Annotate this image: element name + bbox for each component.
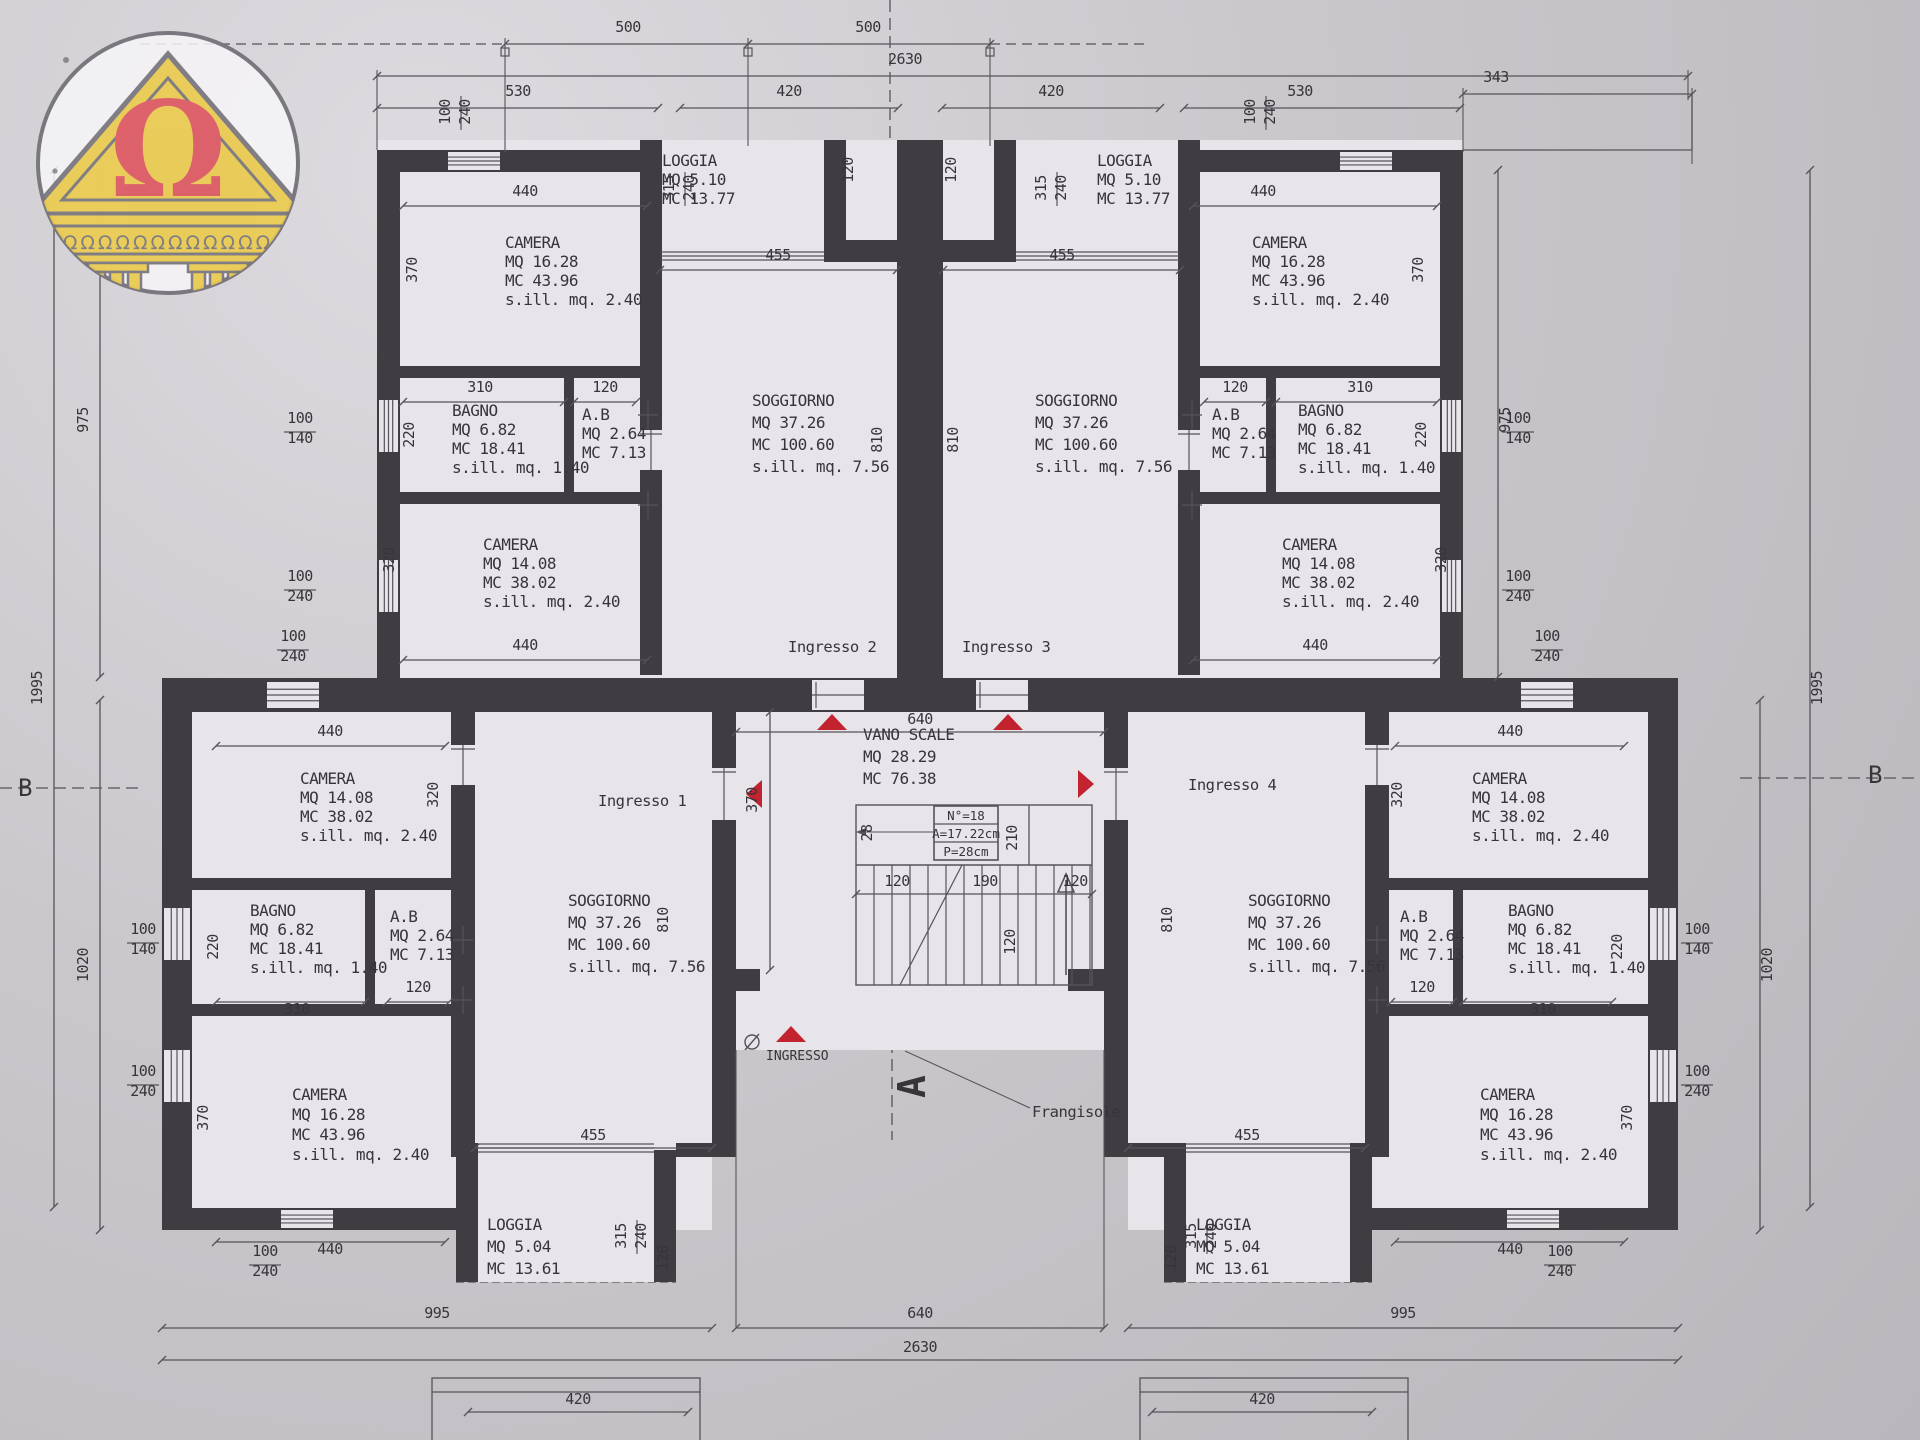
room-label-line: MC 18.41 [250, 939, 323, 958]
dim-label: 310 [1347, 378, 1373, 396]
dim-label: 100 [130, 920, 156, 938]
dim-label: 240 [1547, 1262, 1573, 1280]
dim-label: 120 [1222, 378, 1248, 396]
dim-label: 2630 [903, 1338, 938, 1356]
dim-label: 810 [654, 907, 672, 933]
room-label-line: CAMERA [1480, 1085, 1536, 1104]
room-label-line: s.ill. mq. 2.40 [1282, 592, 1419, 611]
dim-label: 240 [1534, 647, 1560, 665]
dim-label: 455 [1234, 1126, 1260, 1144]
room-label-line: s.ill. mq. 1.40 [1508, 958, 1645, 977]
logo-omega-glyph: Ω [109, 73, 227, 228]
room-label-line: MC 18.41 [1298, 439, 1371, 458]
room-label-line: LOGGIA [662, 151, 718, 170]
dim-label: 100 [436, 99, 454, 125]
dim-label: 315 [612, 1223, 630, 1249]
dim-label: 100 [1547, 1242, 1573, 1260]
dim-label: 120 [942, 157, 960, 183]
room-label-line: CAMERA [300, 769, 356, 788]
dim-label: 975 [1496, 407, 1514, 433]
stair-info-row: A=17.22cm [932, 826, 1000, 841]
dim-label: 240 [287, 587, 313, 605]
dim-label: 240 [1684, 1082, 1710, 1100]
ingresso-2-label: Ingresso 2 [788, 638, 876, 656]
dim-label: 500 [855, 18, 881, 36]
room-label-line: s.ill. mq. 1.40 [452, 458, 589, 477]
room-label-line: s.ill. mq. 2.40 [300, 826, 437, 845]
room-label-line: s.ill. mq. 2.40 [1480, 1145, 1617, 1164]
stair-info-row: N°=18 [947, 808, 985, 823]
wall-segment [994, 140, 1016, 262]
room-label-line: s.ill. mq. 7.56 [568, 957, 705, 976]
dim-label: 455 [1049, 246, 1075, 264]
room-label-line: MQ 16.28 [1480, 1105, 1553, 1124]
dim-label: 120 [884, 872, 910, 890]
dim-label: 530 [1287, 82, 1313, 100]
room-label-line: s.ill. mq. 2.40 [505, 290, 642, 309]
dim-label: 455 [765, 246, 791, 264]
logo-frieze-omegas: ΩΩΩΩΩΩΩΩΩΩΩΩ [63, 232, 273, 254]
wall-segment [712, 969, 760, 991]
room-label-line: s.ill. mq. 2.40 [1472, 826, 1609, 845]
dim-label: 320 [424, 782, 442, 808]
dim-label: 1995 [1808, 671, 1826, 705]
dim-label: 440 [317, 1240, 343, 1258]
room-label-line: MC 13.77 [1097, 189, 1170, 208]
room-label-line: MQ 16.28 [292, 1105, 365, 1124]
room-label-line: A.B [1400, 907, 1427, 926]
room-label-line: MQ 14.08 [300, 788, 373, 807]
room-label-line: A.B [390, 907, 417, 926]
dim-label: 315 [1032, 175, 1050, 201]
room-label-line: s.ill. mq. 7.56 [1035, 457, 1172, 476]
room-label-line: BAGNO [452, 401, 498, 420]
room-label-line: MC 18.41 [1508, 939, 1581, 958]
wall-segment [1200, 366, 1440, 378]
room-label-line: MQ 5.04 [487, 1237, 551, 1256]
dim-label: 1995 [28, 671, 46, 705]
room-label-line: s.ill. mq. 2.40 [1252, 290, 1389, 309]
room-label-line: MQ 2.64 [390, 926, 454, 945]
dim-label: 240 [1261, 99, 1279, 125]
dim-label: 1020 [1758, 947, 1776, 982]
room-label-line: s.ill. mq. 2.40 [483, 592, 620, 611]
room-label-line: A.B [1212, 405, 1239, 424]
room-label-line: MQ 2.64 [1400, 926, 1464, 945]
dim-label: 100 [280, 627, 306, 645]
dim-label: 220 [1412, 422, 1430, 448]
dim-label: 320 [1388, 782, 1406, 808]
room-label-line: CAMERA [292, 1085, 348, 1104]
room-label-line: MC 100.60 [1035, 435, 1117, 454]
dim-label: 420 [565, 1390, 591, 1408]
dim-label: 500 [615, 18, 641, 36]
room-label-line: MQ 6.82 [250, 920, 314, 939]
dim-label: 220 [204, 934, 222, 960]
dim-label: 220 [400, 422, 418, 448]
dim-label: 370 [743, 787, 761, 813]
wall-segment [943, 240, 994, 262]
room-label-line: LOGGIA [487, 1215, 543, 1234]
room-label-line: MC 76.38 [863, 769, 936, 788]
room-label-line: MQ 2.64 [582, 424, 646, 443]
dim-label: 210 [1003, 825, 1021, 851]
room-label-line: MQ 5.10 [1097, 170, 1161, 189]
room-label-line: MQ 37.26 [568, 913, 641, 932]
dim-label: 220 [1608, 934, 1626, 960]
wall-segment [1180, 150, 1463, 172]
wall-segment [676, 1143, 712, 1157]
room-label-line: MQ 37.26 [752, 413, 825, 432]
dim-label: 100 [1684, 1062, 1710, 1080]
dim-label: 810 [944, 427, 962, 453]
dim-label: 190 [972, 872, 998, 890]
dim-label: 240 [632, 1223, 650, 1249]
ingresso-main-label: INGRESSO [766, 1049, 829, 1064]
room-label-line: MQ 6.82 [1508, 920, 1572, 939]
dim-label: 370 [1618, 1105, 1636, 1131]
dim-label: 240 [1505, 587, 1531, 605]
dim-label: 120 [1162, 1245, 1180, 1271]
room-label-line: MC 7.13 [582, 443, 646, 462]
room-label-line: SOGGIORNO [1035, 391, 1117, 410]
dim-label: 100 [287, 409, 313, 427]
ingresso-4-label: Ingresso 4 [1188, 776, 1276, 794]
wall-segment [640, 140, 662, 675]
room-label-line: MC 38.02 [1282, 573, 1355, 592]
ingresso-3-label: Ingresso 3 [962, 638, 1050, 656]
room-label-line: CAMERA [1472, 769, 1528, 788]
room-label-line: SOGGIORNO [752, 391, 834, 410]
room-label-line: MC 18.41 [452, 439, 525, 458]
room-label-line: s.ill. mq. 1.40 [1298, 458, 1435, 477]
frangisole-label: Frangisole [1032, 1103, 1120, 1121]
dim-label: 100 [1534, 627, 1560, 645]
room-label-line: CAMERA [505, 233, 561, 252]
room-label-line: MC 13.61 [487, 1259, 560, 1278]
room-label-line: MC 38.02 [300, 807, 373, 826]
room-label-line: MC 43.96 [1252, 271, 1325, 290]
wall-segment [897, 240, 943, 712]
wall-segment [192, 878, 451, 890]
dim-label: 640 [907, 1304, 933, 1322]
room-label-line: MC 43.96 [1480, 1125, 1553, 1144]
dim-label: 315 [1182, 1223, 1200, 1249]
dim-label: 240 [252, 1262, 278, 1280]
dim-label: 440 [512, 636, 538, 654]
room-label-line: MC 100.60 [568, 935, 650, 954]
dim-label: 440 [512, 182, 538, 200]
dim-label: 370 [1409, 257, 1427, 283]
room-label-line: MQ 37.26 [1035, 413, 1108, 432]
room-label-line: MQ 37.26 [1248, 913, 1321, 932]
room-label-line: MQ 28.29 [863, 747, 936, 766]
dim-label: 440 [1250, 182, 1276, 200]
room-label-line: MQ 6.82 [1298, 420, 1362, 439]
room-label-line: MC 7.13 [1400, 945, 1464, 964]
wall-segment [365, 890, 375, 1004]
dim-label: 100 [1505, 567, 1531, 585]
wall-segment [377, 150, 660, 172]
dim-label: 120 [1001, 929, 1019, 955]
room-label-line: MC 100.60 [752, 435, 834, 454]
wall-segment [1178, 140, 1200, 675]
logo-architrave [40, 214, 296, 226]
room-label-line: MQ 6.82 [452, 420, 516, 439]
dim-label: 140 [1684, 940, 1710, 958]
room-label-line: MC 7.13 [1212, 443, 1276, 462]
dim-label: 120 [1062, 872, 1088, 890]
room-label-line: MQ 14.08 [1282, 554, 1355, 573]
wall-segment [456, 1157, 478, 1282]
room-label-line: BAGNO [1508, 901, 1554, 920]
room-label-line: MQ 16.28 [505, 252, 578, 271]
dim-label: 240 [1052, 175, 1070, 201]
stair-info-row: P=28cm [943, 844, 988, 859]
porch-slab [432, 1378, 700, 1440]
wall-segment [400, 492, 640, 504]
dim-label: 420 [776, 82, 802, 100]
dim-label: 310 [1530, 1000, 1556, 1018]
wall-segment [192, 1004, 451, 1016]
room-label-line: MC 43.96 [292, 1125, 365, 1144]
room-label-line: MC 38.02 [1472, 807, 1545, 826]
wall-segment [846, 240, 897, 262]
wall-segment [1389, 878, 1648, 890]
dim-label: 240 [680, 175, 698, 201]
wall-segment [1068, 969, 1128, 991]
wall-segment [451, 1143, 478, 1157]
dim-label: 28 [858, 824, 876, 842]
dim-label: 810 [1158, 907, 1176, 933]
dim-label: 100 [1241, 99, 1259, 125]
porch-slab [1140, 1378, 1408, 1440]
room-label-line: MC 38.02 [483, 573, 556, 592]
logo-cornice [32, 254, 304, 263]
room-label-line: MC 13.61 [1196, 1259, 1269, 1278]
dim-label: 420 [1038, 82, 1064, 100]
wall-segment [1200, 492, 1440, 504]
dim-label: 440 [1497, 1240, 1523, 1258]
dim-label: 240 [130, 1082, 156, 1100]
wall-segment [712, 678, 736, 1157]
dim-label: 240 [280, 647, 306, 665]
dim-label: 140 [130, 940, 156, 958]
room-label-line: A.B [582, 405, 609, 424]
room-label-line: SOGGIORNO [568, 891, 650, 910]
dim-label: 420 [1249, 1390, 1275, 1408]
dim-label: 370 [194, 1105, 212, 1131]
dim-label: 343 [1483, 68, 1509, 86]
wall-segment [897, 140, 943, 240]
dim-label: 640 [907, 710, 933, 728]
dim-label: 455 [580, 1126, 606, 1144]
dim-label: 310 [467, 378, 493, 396]
dim-label: 995 [1390, 1304, 1416, 1322]
floorplan-canvas: N°=18A=17.22cmP=28cm CAMERAMQ 16.28MC 43… [0, 0, 1920, 1440]
dim-label: 100 [252, 1242, 278, 1260]
dim-label: 240 [456, 99, 474, 125]
dim-label: 100 [287, 567, 313, 585]
section-b-left-label: B [18, 774, 32, 802]
section-b-right-label: B [1868, 761, 1882, 789]
dim-label: 315 [660, 175, 678, 201]
dim-label: 120 [592, 378, 618, 396]
dim-label: 320 [380, 547, 398, 573]
room-label-line: MQ 14.08 [1472, 788, 1545, 807]
wall-segment [400, 366, 640, 378]
room-label-line: s.ill. mq. 2.40 [292, 1145, 429, 1164]
room-label-line: MQ 16.28 [1252, 252, 1325, 271]
dim-label: 530 [505, 82, 531, 100]
wall-segment [1389, 1004, 1648, 1016]
dim-label: 440 [1497, 722, 1523, 740]
dim-label: 240 [1202, 1223, 1220, 1249]
room-label-line: MQ 14.08 [483, 554, 556, 573]
dim-label: 100 [130, 1062, 156, 1080]
room-label-line: MC 7.13 [390, 945, 454, 964]
dim-label: 310 [284, 1000, 310, 1018]
room-label-line: MC 100.60 [1248, 935, 1330, 954]
dim-label: 120 [405, 978, 431, 996]
dim-label: 440 [1302, 636, 1328, 654]
dim-label: 995 [424, 1304, 450, 1322]
dim-label: 370 [403, 257, 421, 283]
dim-label: 120 [1409, 978, 1435, 996]
room-label-line: BAGNO [250, 901, 296, 920]
dim-label: 975 [74, 407, 92, 433]
room-label-line: s.ill. mq. 1.40 [250, 958, 387, 977]
dim-label: 2630 [888, 50, 923, 68]
dim-label: 1020 [74, 947, 92, 982]
dim-label: 320 [1432, 547, 1450, 573]
wall-segment [162, 678, 1678, 712]
room-label-line: s.ill. mq. 7.56 [1248, 957, 1385, 976]
omega-logo: Ω ΩΩΩΩΩΩΩΩΩΩΩΩ [30, 33, 306, 320]
dim-label: 100 [1684, 920, 1710, 938]
room-label-line: SOGGIORNO [1248, 891, 1330, 910]
dim-label: 120 [839, 157, 857, 183]
room-label-line: CAMERA [1252, 233, 1308, 252]
room-label-line: BAGNO [1298, 401, 1344, 420]
section-a-label: A [890, 1075, 934, 1098]
dim-label: 140 [287, 429, 313, 447]
room-label-line: CAMERA [1282, 535, 1338, 554]
dim-label: 120 [654, 1245, 672, 1271]
scanned-floorplan-page: N°=18A=17.22cmP=28cm CAMERAMQ 16.28MC 43… [0, 0, 1920, 1440]
room-label-line: CAMERA [483, 535, 539, 554]
ingresso-1-label: Ingresso 1 [598, 792, 686, 810]
dim-label: 810 [868, 427, 886, 453]
room-label-line: LOGGIA [1097, 151, 1153, 170]
room-label-line: MQ 2.64 [1212, 424, 1276, 443]
room-label-line: MC 43.96 [505, 271, 578, 290]
dim-label: 440 [317, 722, 343, 740]
wall-segment [1104, 678, 1128, 1157]
room-label-line: s.ill. mq. 7.56 [752, 457, 889, 476]
